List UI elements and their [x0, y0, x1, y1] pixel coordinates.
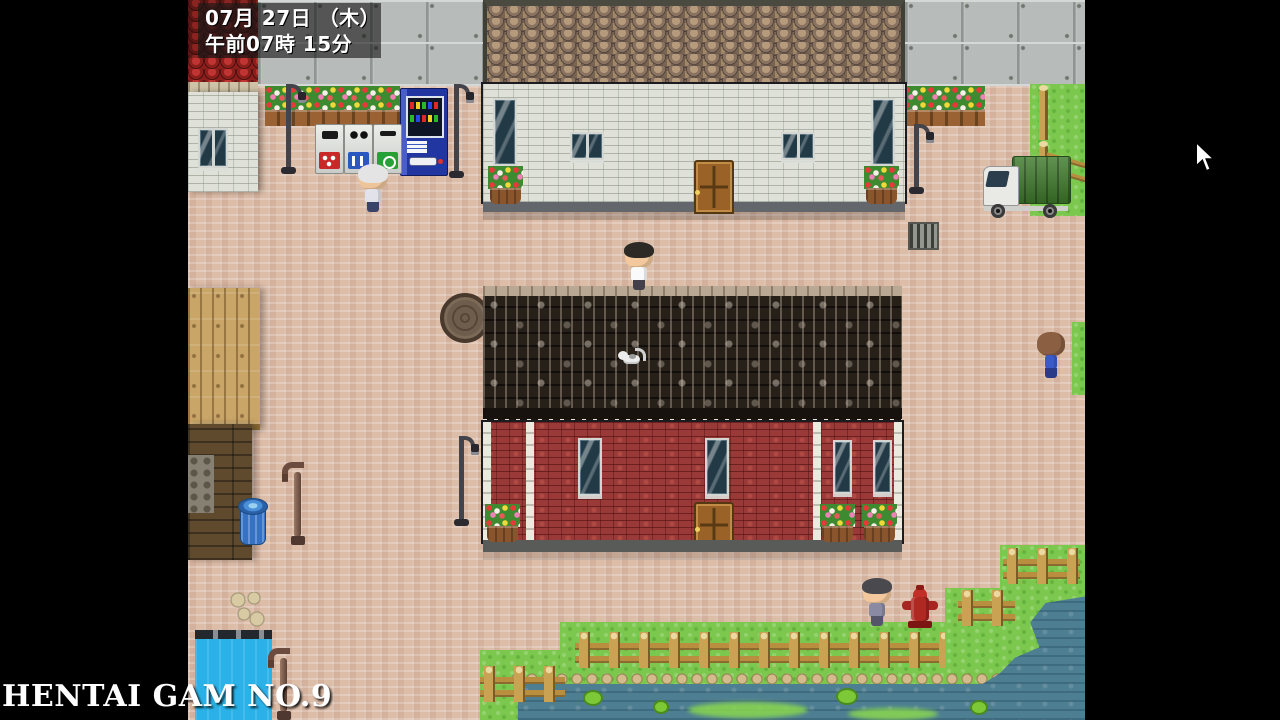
- bin-holes: [350, 131, 368, 139]
- cat-patch: [629, 354, 636, 359]
- npc-hair: [358, 164, 388, 183]
- planter-box: [866, 188, 897, 204]
- planter: [485, 504, 520, 542]
- lamp-pole: [454, 88, 459, 172]
- truck-wheel: [991, 204, 1005, 218]
- lamp-pole: [286, 88, 291, 168]
- planter-box: [864, 526, 895, 542]
- lamp-head: [471, 444, 479, 455]
- window-glare: [783, 134, 813, 158]
- red-building-window: [578, 438, 602, 496]
- lamp-post: [449, 436, 475, 526]
- grass-strip-right: [1072, 322, 1085, 395]
- algae: [688, 702, 808, 718]
- pebbles: [230, 592, 266, 628]
- npc-player[interactable]: [624, 244, 654, 292]
- truck-cab: [983, 166, 1019, 206]
- window-glare: [572, 134, 602, 158]
- door-panels: [700, 166, 728, 208]
- npc-elder[interactable]: [358, 166, 388, 214]
- truck-wheel: [1043, 204, 1057, 218]
- vending-sticker: [407, 141, 427, 153]
- metal-wall-right: [905, 0, 1085, 86]
- small-window-left: [570, 132, 604, 160]
- vending-slot: [409, 157, 437, 166]
- npc-grey-suit[interactable]: [862, 580, 892, 628]
- vending-display: [406, 96, 444, 138]
- planter-box: [822, 526, 853, 542]
- npc-legs: [367, 202, 379, 212]
- fence-post: [1039, 88, 1048, 140]
- bin-slot: [380, 131, 396, 136]
- lamp-base: [909, 187, 924, 194]
- trash-can-lid: [238, 498, 268, 515]
- tall-window-right: [871, 98, 895, 166]
- hydrant-cap: [916, 585, 924, 590]
- dark-tile-roof: [483, 296, 902, 412]
- hud-date: 07月 27日 （木）: [205, 5, 381, 31]
- planter: [864, 166, 899, 204]
- lily-pad: [653, 700, 669, 714]
- pump-spout: [268, 660, 274, 667]
- lamp-head: [926, 132, 934, 143]
- window-glare: [200, 130, 226, 166]
- grey-building-door[interactable]: [694, 160, 734, 214]
- npc-hair: [862, 578, 892, 594]
- truck-windshield: [985, 171, 1009, 187]
- planter-flowers: [485, 504, 520, 527]
- planter-box: [490, 188, 521, 204]
- npc-legs: [1045, 368, 1057, 378]
- wooden-fence: [575, 632, 945, 668]
- small-window-right: [781, 132, 815, 160]
- hydrant-base: [908, 621, 932, 628]
- lamp-head: [466, 92, 474, 103]
- scalloped-roof: [483, 0, 905, 86]
- wooden-fence: [480, 666, 565, 702]
- lamp-post: [444, 84, 470, 178]
- left-building-window: [198, 128, 228, 168]
- vending-machine[interactable]: [400, 88, 448, 176]
- vending-products: [410, 115, 440, 122]
- hud-time: 午前07時 15分: [205, 31, 381, 57]
- trash-can[interactable]: [238, 498, 268, 545]
- wooden-building-roof: [188, 288, 260, 430]
- wooden-fence: [1003, 548, 1080, 584]
- red-building-window: [833, 440, 852, 494]
- lamp-base: [281, 167, 296, 174]
- planter: [488, 166, 523, 204]
- pump-pole: [294, 472, 301, 537]
- lamp-pole: [914, 128, 919, 188]
- npc-body: [631, 267, 647, 281]
- lamp-base: [449, 171, 464, 178]
- arrow-cursor-icon: [1194, 141, 1216, 177]
- red-building-window: [873, 440, 892, 494]
- lamp-pole: [459, 440, 464, 520]
- npc-head: [1037, 332, 1065, 356]
- bin-label-red: [319, 152, 340, 169]
- lamp-base: [454, 519, 469, 526]
- planter-flowers: [488, 166, 523, 189]
- stone-patch: [188, 455, 214, 513]
- cat-head: [618, 351, 628, 360]
- door-panels: [700, 508, 728, 542]
- pump-base: [291, 536, 305, 545]
- quoin: [526, 422, 534, 542]
- npc-hair: [624, 242, 654, 258]
- planter-box: [487, 526, 518, 542]
- roof-edging: [188, 82, 258, 92]
- tall-window-left: [493, 98, 517, 166]
- window-glare: [495, 100, 515, 164]
- npc-body: [365, 189, 381, 203]
- npc-legs: [633, 280, 645, 290]
- window-glare: [873, 100, 893, 164]
- bin-slot: [322, 131, 338, 139]
- hydrant-body: [911, 597, 929, 621]
- npc-body: [1045, 355, 1057, 369]
- lamp-post: [276, 84, 302, 174]
- lily-pad: [970, 700, 988, 715]
- planter-flowers: [862, 504, 897, 527]
- screen: { "hud": { "date_line": "07月 27日 （木）", "…: [0, 0, 1280, 720]
- fire-hydrant[interactable]: [902, 586, 938, 628]
- window-glare: [875, 442, 890, 492]
- cat[interactable]: [618, 348, 646, 368]
- street-grate: [908, 222, 939, 250]
- planter: [862, 504, 897, 542]
- npc-legs: [871, 616, 883, 626]
- window-glare: [707, 440, 727, 494]
- flowerbed-right: [903, 86, 985, 112]
- window-glare: [835, 442, 850, 492]
- red-building-shadow: [483, 552, 902, 560]
- truck-cargo: [1012, 156, 1071, 204]
- pool-edge: [195, 630, 272, 639]
- watermark-text: HENTAI GAM NO.9: [2, 679, 332, 714]
- datetime-window: 07月 27日 （木） 午前07時 15分: [198, 3, 381, 58]
- game-viewport[interactable]: [188, 0, 1085, 720]
- pump-spout: [282, 474, 288, 481]
- cursor-glyph: [1194, 141, 1216, 173]
- window-glare: [580, 440, 600, 494]
- lamp-head: [298, 92, 306, 103]
- red-roof-band: [188, 58, 258, 84]
- door-knob: [695, 190, 700, 195]
- algae: [848, 708, 938, 720]
- recycle-bin-cans[interactable]: [315, 124, 344, 174]
- lily-pad: [836, 688, 858, 705]
- vending-products: [410, 102, 440, 109]
- lamp-post: [904, 124, 930, 194]
- lily-pad: [583, 690, 603, 706]
- red-building-window: [705, 438, 729, 496]
- npc-body: [869, 603, 885, 617]
- truck: [983, 156, 1071, 218]
- vending-button: [438, 159, 443, 164]
- planter-flowers: [864, 166, 899, 189]
- planter-flowers: [820, 504, 855, 527]
- wooden-fence: [958, 590, 1015, 626]
- water-pump: [282, 462, 312, 545]
- planter: [820, 504, 855, 542]
- npc-bald-man[interactable]: [1036, 332, 1066, 380]
